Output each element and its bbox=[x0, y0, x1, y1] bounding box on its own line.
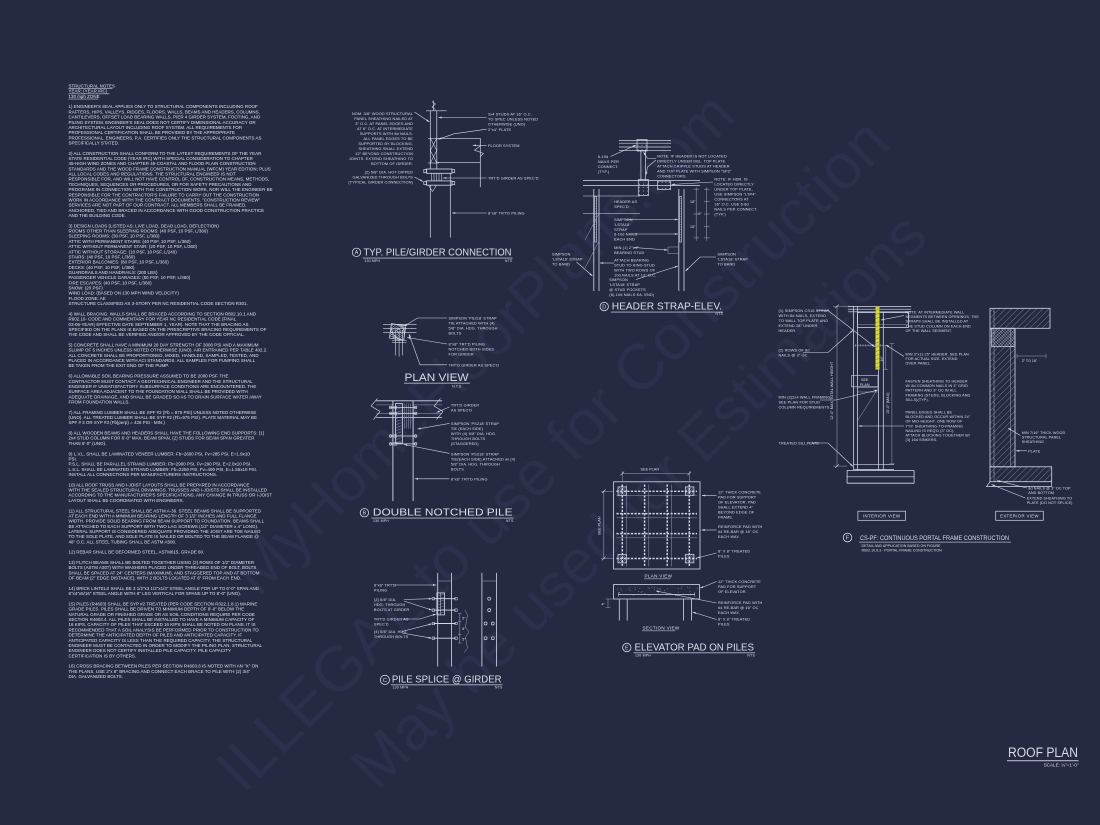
svg-text:OF MID-HEIGHT. ONE ROW OF: OF MID-HEIGHT. ONE ROW OF bbox=[906, 420, 964, 424]
svg-text:@ STUD POCKETS: @ STUD POCKETS bbox=[609, 288, 646, 292]
svg-text:SPECIFICALLY STATED.: SPECIFICALLY STATED. bbox=[69, 140, 120, 145]
svg-text:TYP. PILE/GIRDER CONNECTION: TYP. PILE/GIRDER CONNECTION bbox=[364, 248, 512, 259]
svg-text:HEADER.: HEADER. bbox=[779, 329, 797, 333]
svg-text:12" BEYOND CONSTRUCTION: 12" BEYOND CONSTRUCTION bbox=[355, 152, 413, 156]
svg-text:SECTION VIEW: SECTION VIEW bbox=[643, 626, 680, 631]
svg-text:OVER PANEL.: OVER PANEL. bbox=[906, 362, 932, 366]
svg-text:THE STUD COLUMN ON EACH END: THE STUD COLUMN ON EACH END bbox=[906, 324, 972, 328]
svg-text:12'-0" MAX TOTAL WALL HEIGHT: 12'-0" MAX TOTAL WALL HEIGHT bbox=[830, 361, 834, 420]
svg-text:BOLTS: BOLTS bbox=[451, 467, 464, 471]
svg-text:TO BAND: TO BAND bbox=[717, 263, 735, 267]
svg-text:SEGMENTS BETWEEN OPENINGS, THE: SEGMENTS BETWEEN OPENINGS, THE bbox=[906, 315, 980, 319]
svg-text:'LSTA18' STRAP: 'LSTA18' STRAP bbox=[609, 283, 640, 287]
svg-text:130 mph ZONE: 130 mph ZONE bbox=[69, 94, 100, 99]
svg-text:8"x8" TRT'D PILING: 8"x8" TRT'D PILING bbox=[451, 477, 488, 481]
svg-text:NAILS PER CONNECT.: NAILS PER CONNECT. bbox=[714, 208, 757, 212]
svg-text:DIRECTLY UNDER DBL. TOP PLATE: DIRECTLY UNDER DBL. TOP PLATE bbox=[657, 160, 726, 164]
svg-text:BEARING STUD: BEARING STUD bbox=[614, 251, 644, 255]
svg-text:'LSTA18' STRAP: 'LSTA18' STRAP bbox=[552, 258, 583, 262]
svg-text:NOM. 3/8" WOOD STRUCTURAL: NOM. 3/8" WOOD STRUCTURAL bbox=[352, 112, 414, 116]
svg-text:COLUMN REQUIREMENTS.: COLUMN REQUIREMENTS. bbox=[779, 406, 831, 410]
svg-text:(STAGGERED): (STAGGERED) bbox=[451, 442, 479, 446]
svg-text:A: A bbox=[355, 250, 359, 256]
svg-text:8"x8" TRT'D: 8"x8" TRT'D bbox=[374, 584, 396, 588]
svg-text:HEADER AS: HEADER AS bbox=[614, 200, 637, 204]
svg-text:EACH END: EACH END bbox=[614, 238, 635, 242]
svg-text:(4) 5/8" DIA. HDG: (4) 5/8" DIA. HDG bbox=[374, 630, 407, 634]
svg-text:SEE: SEE bbox=[861, 378, 869, 382]
svg-text:EXTERIOR VIEW: EXTERIOR VIEW bbox=[1000, 514, 1039, 519]
svg-text:LOCATED DIRECTLY: LOCATED DIRECTLY bbox=[714, 183, 754, 187]
svg-text:SIMPSON: SIMPSON bbox=[609, 278, 628, 282]
svg-text:THE CODE AND SHALL BE VERIFIED: THE CODE AND SHALL BE VERIFIED AND/OR AP… bbox=[69, 332, 245, 337]
svg-text:HDG. THROUGH: HDG. THROUGH bbox=[374, 603, 406, 607]
svg-text:BOLTS AT GIRDER: BOLTS AT GIRDER bbox=[374, 608, 410, 612]
svg-text:STRUCTURAL PANEL: STRUCTURAL PANEL bbox=[1022, 436, 1061, 440]
svg-text:WITH (4) 5/8" DIA. HDG.: WITH (4) 5/8" DIA. HDG. bbox=[451, 432, 496, 436]
svg-text:MIN (1) 2"x4": MIN (1) 2"x4" bbox=[614, 246, 639, 250]
svg-text:PILES: PILES bbox=[718, 555, 730, 559]
svg-text:DIA. GALVANIZED BOLTS.: DIA. GALVANIZED BOLTS. bbox=[69, 674, 123, 679]
svg-text:PLAN VIEW: PLAN VIEW bbox=[645, 574, 673, 579]
svg-text:TIE (EACH SIDE): TIE (EACH SIDE) bbox=[451, 427, 484, 431]
svg-text:NOTCHED BOTH SIDES: NOTCHED BOTH SIDES bbox=[449, 348, 495, 352]
svg-text:CONNECTORS.: CONNECTORS. bbox=[657, 175, 687, 179]
svg-text:EACH WAY.: EACH WAY. bbox=[718, 611, 740, 615]
svg-text:BOTTOM OF GIRDER.: BOTTOM OF GIRDER. bbox=[371, 162, 413, 166]
svg-text:USE SIMPSON "LTP4": USE SIMPSON "LTP4" bbox=[714, 193, 756, 197]
svg-text:INSTALL ALL CONNECTIONS PER MA: INSTALL ALL CONNECTIONS PER MANUFACTURER… bbox=[69, 472, 218, 477]
svg-text:CERTIFICATION IS BY OTHERS.: CERTIFICATION IS BY OTHERS. bbox=[69, 653, 137, 658]
svg-text:SEE PLAN FOR STUD: SEE PLAN FOR STUD bbox=[779, 401, 821, 405]
svg-text:PILE SPLICE @ GIRDER: PILE SPLICE @ GIRDER bbox=[392, 673, 502, 685]
svg-text:ATTACH BEARING: ATTACH BEARING bbox=[614, 258, 649, 262]
svg-text:ALL PANEL EDGES TO BE: ALL PANEL EDGES TO BE bbox=[364, 137, 414, 141]
svg-text:8"x8" TRT'D PILING: 8"x8" TRT'D PILING bbox=[488, 212, 525, 216]
svg-text:DETAIL AND APPLICATION BASED O: DETAIL AND APPLICATION BASED ON FIGURE bbox=[862, 544, 942, 548]
svg-text:FASTEN SHEATHING TO HEADER: FASTEN SHEATHING TO HEADER bbox=[906, 380, 968, 384]
svg-text:SPEC'D: SPEC'D bbox=[614, 205, 629, 209]
svg-text:(TYPICAL GIRDER CONNECTION): (TYPICAL GIRDER CONNECTION) bbox=[348, 181, 413, 185]
svg-text:PLAN: PLAN bbox=[860, 383, 870, 387]
svg-text:PLAN VIEW: PLAN VIEW bbox=[405, 372, 470, 384]
svg-text:SCALE: ¼"=1'-0": SCALE: ¼"=1'-0" bbox=[1044, 763, 1079, 768]
svg-text:2x4 STUDS AT 16" O.C.: 2x4 STUDS AT 16" O.C. bbox=[488, 113, 532, 117]
svg-text:TRT'D GIRDER AS SPEC'D: TRT'D GIRDER AS SPEC'D bbox=[488, 177, 539, 181]
svg-text:PANEL EDGES SHALL BE: PANEL EDGES SHALL BE bbox=[906, 411, 953, 415]
svg-text:PLATE (DO NOT SPLICE): PLATE (DO NOT SPLICE) bbox=[1027, 501, 1073, 505]
svg-text:AND TOP PLATE WITH SIMPSON "SP: AND TOP PLATE WITH SIMPSON "SP2" bbox=[657, 170, 732, 174]
svg-text:12" THICK CONCRETE: 12" THICK CONCRETE bbox=[718, 491, 761, 495]
svg-text:NOTE: IF HDR. IS: NOTE: IF HDR. IS bbox=[714, 178, 748, 182]
svg-text:NTS: NTS bbox=[505, 259, 513, 263]
svg-text:#4 RE-BAR @ 16" OC: #4 RE-BAR @ 16" OC bbox=[718, 606, 759, 610]
svg-text:5/8" DIA. HDG. THROUGH: 5/8" DIA. HDG. THROUGH bbox=[449, 327, 498, 331]
svg-text:HEADER STRAP-ELEV.: HEADER STRAP-ELEV. bbox=[612, 301, 722, 313]
svg-text:BE TAKEN FROM THE EXIT END OF: BE TAKEN FROM THE EXIT END OF THE PUMP. bbox=[69, 363, 169, 368]
svg-text:STRUCTURE CLASSIFIED AS 3-STOR: STRUCTURE CLASSIFIED AS 3-STORY PER NC R… bbox=[69, 301, 248, 306]
svg-text:D: D bbox=[602, 304, 606, 310]
svg-text:#4 RE-BAR @ 16" OC: #4 RE-BAR @ 16" OC bbox=[718, 530, 759, 534]
svg-text:8" X 8" TREATED: 8" X 8" TREATED bbox=[718, 618, 750, 622]
svg-text:R602.10.6.3 - PORTAL FRAME CON: R602.10.6.3 - PORTAL FRAME CONSTRUCTION bbox=[862, 549, 943, 553]
svg-text:SHEATHING SHALL EXTEND: SHEATHING SHALL EXTEND bbox=[358, 147, 413, 151]
svg-text:(2) 5/8" DIA. HOT DIPPED: (2) 5/8" DIA. HOT DIPPED bbox=[365, 171, 413, 175]
svg-text:AND BOTTOM: AND BOTTOM bbox=[1028, 491, 1054, 495]
svg-text:2"x4" PLATE: 2"x4" PLATE bbox=[488, 128, 512, 132]
svg-text:TRT'D GIRDER AS SPEC'D: TRT'D GIRDER AS SPEC'D bbox=[449, 363, 500, 367]
svg-text:JOINTS. EXTEND SHEATHING TO: JOINTS. EXTEND SHEATHING TO bbox=[349, 157, 413, 161]
svg-text:NTS: NTS bbox=[715, 312, 723, 316]
svg-text:130 MPH: 130 MPH bbox=[635, 654, 651, 658]
svg-text:12" THICK CONCRETE: 12" THICK CONCRETE bbox=[718, 580, 761, 584]
svg-text:8d NAILS @ 3" OC TOP: 8d NAILS @ 3" OC TOP bbox=[1028, 487, 1071, 491]
svg-text:TRT'D GIRDER AS: TRT'D GIRDER AS bbox=[374, 618, 409, 622]
svg-text:B: B bbox=[363, 511, 367, 517]
svg-text:PILES: PILES bbox=[718, 623, 730, 627]
svg-text:BEYOND EDGE OF: BEYOND EDGE OF bbox=[718, 511, 755, 515]
svg-text:THROUGH BOLTS: THROUGH BOLTS bbox=[451, 437, 486, 441]
svg-text:(TYP.): (TYP.) bbox=[714, 213, 726, 217]
svg-text:NOTE: IF HEADER IS NOT LOCATED: NOTE: IF HEADER IS NOT LOCATED bbox=[657, 155, 727, 159]
svg-text:FROM FOUNDATION WALLS.: FROM FOUNDATION WALLS. bbox=[69, 399, 130, 404]
svg-text:(6)-10d NAILS EA. END): (6)-10d NAILS EA. END) bbox=[609, 293, 655, 297]
svg-text:SUPPORTED BY BLOCKING.: SUPPORTED BY BLOCKING. bbox=[358, 142, 413, 146]
svg-text:FRAMING (STUDS, BLOCKING AND: FRAMING (STUDS, BLOCKING AND bbox=[906, 393, 971, 397]
svg-text:STRAPS SHALL BE INSTALLED AT: STRAPS SHALL BE INSTALLED AT bbox=[906, 320, 969, 324]
svg-text:PLATE: PLATE bbox=[1028, 449, 1040, 453]
svg-text:TREATED SILLPLATE: TREATED SILLPLATE bbox=[779, 442, 820, 446]
svg-text:TO WALL TOP PLATE AND: TO WALL TOP PLATE AND bbox=[779, 319, 829, 323]
svg-text:PAD FOR SUPPORT: PAD FOR SUPPORT bbox=[718, 496, 757, 500]
svg-text:PILING: PILING bbox=[374, 589, 387, 593]
svg-text:5/8" DIA. HDG. THROUGH: 5/8" DIA. HDG. THROUGH bbox=[451, 462, 500, 466]
svg-text:WITH TWO ROWS OF: WITH TWO ROWS OF bbox=[614, 268, 656, 272]
svg-text:OF BEAM (2" EDGE DISTANCE), WI: OF BEAM (2" EDGE DISTANCE), WITH 2 BOLTS… bbox=[69, 576, 242, 581]
svg-text:6-10d NAILS: 6-10d NAILS bbox=[614, 233, 638, 237]
svg-text:TO BAND: TO BAND bbox=[552, 263, 570, 267]
svg-text:N.T.S.: N.T.S. bbox=[452, 385, 462, 389]
svg-text:BLOCKED AND OCCUR WITHIN 24": BLOCKED AND OCCUR WITHIN 24" bbox=[906, 415, 971, 419]
svg-text:SIMPSON 'PS218' STRAP: SIMPSON 'PS218' STRAP bbox=[451, 422, 500, 426]
svg-text:6"x4"x5/16" STEEL ANGLE WITH 6: 6"x4"x5/16" STEEL ANGLE WITH 6" LEG VERT… bbox=[69, 591, 241, 596]
svg-text:9) L.V.L. SHALL BE LAMINATED: 9) L.V.L. SHALL BE LAMINATED VENEER LUMB… bbox=[69, 451, 251, 456]
svg-text:PAD FOR SUPPORT: PAD FOR SUPPORT bbox=[718, 585, 757, 589]
svg-text:LAYOUT SHALL BE COORDINATED WI: LAYOUT SHALL BE COORDINATED WITH ENGINEE… bbox=[69, 498, 184, 503]
svg-text:EXTEND SHEATHING TO: EXTEND SHEATHING TO bbox=[1027, 497, 1073, 501]
svg-text:SIMPSON: SIMPSON bbox=[717, 253, 736, 257]
svg-text:NOTE: AT INTERMEDIATE WALL: NOTE: AT INTERMEDIATE WALL bbox=[906, 311, 965, 315]
svg-text:UNDER TOP PLATE,: UNDER TOP PLATE, bbox=[714, 188, 752, 192]
svg-text:MIN 3"x11.25" HEADER. SEE PLAN: MIN 3"x11.25" HEADER. SEE PLAN bbox=[906, 353, 970, 357]
svg-text:18": 18" bbox=[690, 225, 696, 229]
svg-text:CONNECTORS AT: CONNECTORS AT bbox=[714, 198, 749, 202]
svg-text:MIN (2)2x4 WALL FRAMING.: MIN (2)2x4 WALL FRAMING. bbox=[779, 396, 832, 400]
svg-text:'LSTA18' STRAP: 'LSTA18' STRAP bbox=[717, 258, 748, 262]
svg-text:SIMPSON: SIMPSON bbox=[614, 218, 633, 222]
svg-text:FOR GIRDER: FOR GIRDER bbox=[449, 353, 474, 357]
svg-text:OF ELEVATOR.: OF ELEVATOR. bbox=[718, 590, 747, 594]
svg-text:THROUGH BOLTS: THROUGH BOLTS bbox=[374, 635, 409, 639]
svg-text:TO SPEC UNLESS NOTED: TO SPEC UNLESS NOTED bbox=[488, 118, 538, 122]
svg-text:REINFORCE PAD WITH: REINFORCE PAD WITH bbox=[718, 601, 762, 605]
svg-text:130 MPH: 130 MPH bbox=[364, 259, 380, 263]
svg-text:REINFORCE PAD WITH: REINFORCE PAD WITH bbox=[718, 525, 762, 529]
svg-text:ATTACH BLOCKING TOGETHER W/: ATTACH BLOCKING TOGETHER W/ bbox=[906, 434, 971, 438]
svg-text:TIE(EACH SIDE) ATTACHED w/ (4): TIE(EACH SIDE) ATTACHED w/ (4) bbox=[451, 457, 516, 461]
svg-text:FOR ACTUAL SIZE. EXTEND: FOR ACTUAL SIZE. EXTEND bbox=[906, 357, 958, 361]
svg-text:EACH WAY.: EACH WAY. bbox=[718, 535, 740, 539]
svg-text:SPEC'D: SPEC'D bbox=[374, 623, 389, 627]
svg-text:ATTACH CRIPPLE STUDS AT HEADER: ATTACH CRIPPLE STUDS AT HEADER bbox=[657, 165, 730, 169]
svg-text:SILLS)(TYP).: SILLS)(TYP). bbox=[906, 398, 929, 402]
svg-text:TIE ATTACHED WITH (4): TIE ATTACHED WITH (4) bbox=[449, 322, 496, 326]
svg-text:PANEL SHEATHING NAILED AT: PANEL SHEATHING NAILED AT bbox=[354, 117, 413, 121]
svg-text:OF THE WALL SEGMENT.: OF THE WALL SEGMENT. bbox=[906, 329, 953, 333]
svg-text:TRT'D GIRDER: TRT'D GIRDER bbox=[451, 403, 479, 407]
svg-text:SEE PLAN: SEE PLAN bbox=[641, 468, 660, 472]
svg-text:48" O.C. ALL STEEL TUBING SHAL: 48" O.C. ALL STEEL TUBING SHALL BE ASTM … bbox=[69, 539, 177, 544]
svg-text:NTS: NTS bbox=[495, 686, 503, 690]
svg-text:SIMPSON 'PS218' STRAP: SIMPSON 'PS218' STRAP bbox=[449, 317, 498, 321]
svg-text:NAILING IS REQ'D (3" OC).: NAILING IS REQ'D (3" OC). bbox=[906, 429, 955, 433]
svg-text:(TYP.): (TYP.) bbox=[598, 170, 610, 174]
svg-text:SUPPORTS WITH 8d NAILS.: SUPPORTS WITH 8d NAILS. bbox=[360, 132, 413, 136]
svg-text:OTHERWISE (UNO): OTHERWISE (UNO) bbox=[488, 123, 526, 127]
svg-text:6-10d: 6-10d bbox=[598, 155, 608, 159]
svg-text:SHALL EXTEND 4": SHALL EXTEND 4" bbox=[718, 506, 754, 510]
svg-text:AT 6" O.C. AT INTERMEDIATE: AT 6" O.C. AT INTERMEDIATE bbox=[357, 127, 413, 131]
svg-text:C: C bbox=[383, 678, 387, 684]
svg-text:(1) SIMPSON CS16 STRAP: (1) SIMPSON CS16 STRAP bbox=[779, 309, 830, 313]
svg-text:(2) 5/8" DIA.: (2) 5/8" DIA. bbox=[374, 598, 397, 602]
svg-text:BOLTS: BOLTS bbox=[449, 332, 462, 336]
svg-text:SIMPSON: SIMPSON bbox=[552, 253, 571, 257]
svg-text:STUD TO KING STUD: STUD TO KING STUD bbox=[614, 263, 655, 267]
svg-text:EXTEND 28" UNDER: EXTEND 28" UNDER bbox=[779, 324, 818, 328]
svg-text:MIN 7/16" THICK WOOD: MIN 7/16" THICK WOOD bbox=[1022, 431, 1066, 435]
svg-text:INTERIOR VIEW: INTERIOR VIEW bbox=[863, 514, 901, 519]
svg-text:SEE PLAN: SEE PLAN bbox=[598, 516, 602, 535]
svg-text:NAILS PER: NAILS PER bbox=[598, 160, 619, 164]
svg-text:NAILS @ 3" OC: NAILS @ 3" OC bbox=[779, 354, 808, 358]
svg-text:AND THE BUILDING CODE.: AND THE BUILDING CODE. bbox=[69, 213, 126, 218]
svg-text:FRAME.: FRAME. bbox=[718, 516, 733, 520]
svg-text:DOUBLE NOTCHED PILE: DOUBLE NOTCHED PILE bbox=[373, 507, 513, 519]
svg-text:ELEVATOR PAD ON PILES: ELEVATOR PAD ON PILES bbox=[635, 642, 755, 653]
svg-text:12) REBAR SHALL BE DEFORMED ST: 12) REBAR SHALL BE DEFORMED STEEL, ASTM6… bbox=[69, 550, 205, 555]
svg-text:CS-PF: CONTINUOUS PORTAL FRAME: CS-PF: CONTINUOUS PORTAL FRAME CONSTRUCT… bbox=[860, 535, 1009, 542]
svg-text:SHEATHING: SHEATHING bbox=[1022, 440, 1044, 444]
svg-text:FLOOR SYSTEM: FLOOR SYSTEM bbox=[488, 144, 520, 148]
svg-text:CONNECT.: CONNECT. bbox=[598, 165, 619, 169]
svg-text:E: E bbox=[625, 645, 629, 651]
svg-text:ROOF PLAN: ROOF PLAN bbox=[1008, 745, 1078, 760]
svg-text:(3) 16d SINKERS.: (3) 16d SINKERS. bbox=[906, 438, 938, 442]
svg-text:18": 18" bbox=[690, 200, 696, 204]
svg-text:10'-0" (MAX): 10'-0" (MAX) bbox=[886, 392, 890, 414]
svg-text:8"x8" TRT'D PILING: 8"x8" TRT'D PILING bbox=[449, 343, 486, 347]
svg-text:AS SPEC'D: AS SPEC'D bbox=[451, 408, 472, 412]
svg-text:16": 16" bbox=[880, 356, 884, 362]
svg-text:130 MPH: 130 MPH bbox=[393, 686, 409, 690]
svg-text:NTS: NTS bbox=[747, 654, 755, 658]
svg-text:3" O.C. AT PANEL EDGES AND: 3" O.C. AT PANEL EDGES AND bbox=[355, 122, 413, 126]
svg-text:NTS: NTS bbox=[506, 519, 514, 523]
svg-text:(2) ROWS OF 8d: (2) ROWS OF 8d bbox=[779, 349, 810, 353]
svg-text:WITH 8d NAILS. EXTEND: WITH 8d NAILS. EXTEND bbox=[779, 314, 827, 318]
svg-text:STRAP: STRAP bbox=[614, 228, 628, 232]
svg-text:'LSTA18': 'LSTA18' bbox=[614, 223, 630, 227]
svg-text:W/ 8d COMMON NAILS IN 3" GRID: W/ 8d COMMON NAILS IN 3" GRID bbox=[906, 384, 969, 388]
svg-text:16" O.C. USE 6-8d: 16" O.C. USE 6-8d bbox=[714, 203, 748, 207]
svg-text:SIMPSON 'PS218' STRAP: SIMPSON 'PS218' STRAP bbox=[451, 452, 500, 456]
svg-text:PATTERN AND 3" OC IN ALL: PATTERN AND 3" OC IN ALL bbox=[906, 389, 957, 393]
svg-text:THAN 6'-0" (UNO).: THAN 6'-0" (UNO). bbox=[69, 441, 107, 446]
svg-text:2" TO 18": 2" TO 18" bbox=[1022, 359, 1038, 363]
svg-text:SPF # 3 OR SYP #3 (Fb(perp) =: SPF # 3 OR SYP #3 (Fb(perp) = 425 PSI - … bbox=[69, 420, 166, 425]
svg-text:OF ELEVATOR. PAD: OF ELEVATOR. PAD bbox=[718, 501, 756, 505]
svg-text:GALVANIZED THROUGH BOLTS: GALVANIZED THROUGH BOLTS bbox=[353, 176, 414, 180]
svg-text:8" X 8" TREATED: 8" X 8" TREATED bbox=[718, 550, 750, 554]
svg-text:130 MPH: 130 MPH bbox=[373, 519, 389, 523]
svg-text:TYP. SHEATHING-TO-FRAMING: TYP. SHEATHING-TO-FRAMING bbox=[906, 424, 964, 428]
